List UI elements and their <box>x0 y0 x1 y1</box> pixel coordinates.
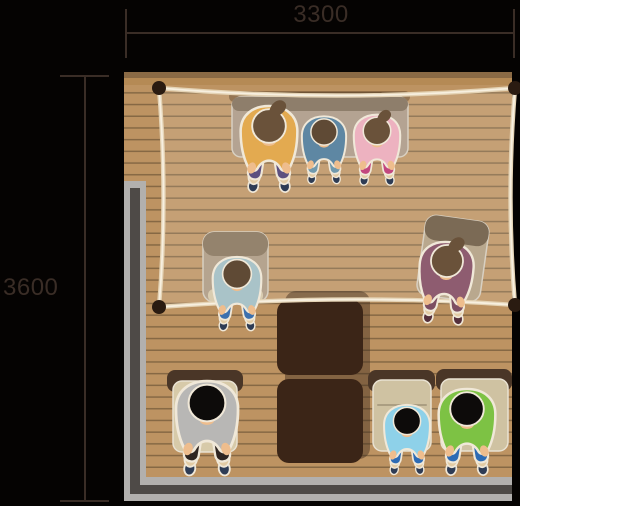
wall-bottom-core <box>130 485 512 494</box>
wall-left-core <box>130 188 140 494</box>
floor-chair-left-back <box>203 232 268 256</box>
head <box>189 385 226 422</box>
chest-bottom <box>277 379 363 463</box>
head <box>450 392 484 426</box>
plan-svg: 3300 3600 <box>0 0 520 506</box>
chest-top <box>277 300 363 375</box>
dim-label-height: 3600 <box>3 274 58 301</box>
head <box>393 407 420 434</box>
plan-canvas: 3300 3600 <box>0 0 520 506</box>
head <box>311 119 337 145</box>
room-size-floor-plan: 3300 3600 <box>0 0 640 506</box>
stake-0 <box>152 81 166 95</box>
dim-label-width: 3300 <box>293 1 348 28</box>
head <box>223 260 252 289</box>
stake-2 <box>152 300 166 314</box>
